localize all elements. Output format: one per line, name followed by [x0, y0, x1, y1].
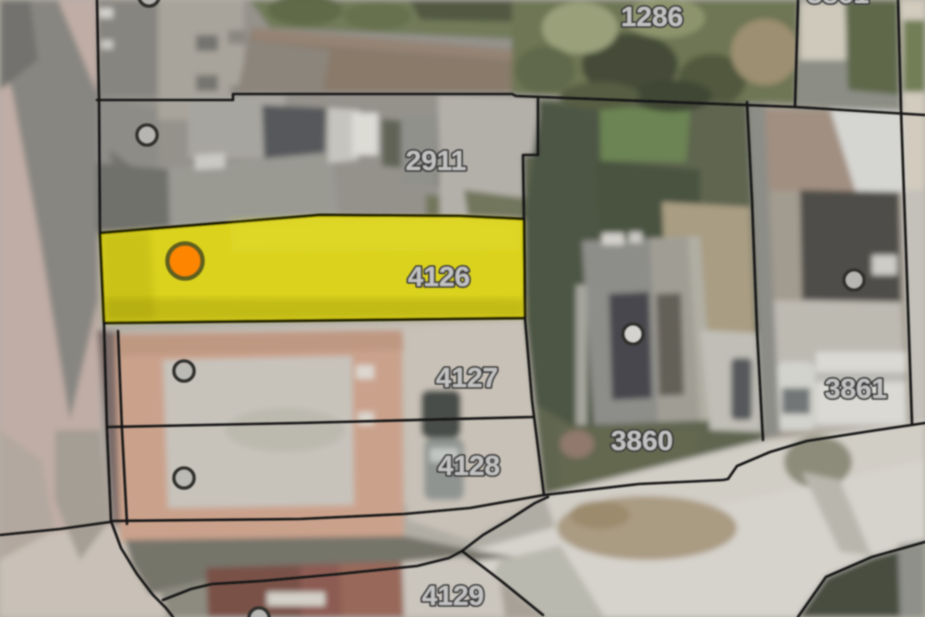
svg-text:4128: 4128	[438, 450, 500, 481]
svg-text:4129: 4129	[422, 580, 484, 611]
svg-text:3860: 3860	[611, 425, 673, 456]
svg-text:3861: 3861	[807, 0, 869, 9]
svg-text:3861: 3861	[825, 373, 887, 404]
svg-text:4127: 4127	[436, 362, 498, 393]
svg-text:1286: 1286	[621, 1, 683, 32]
svg-text:2911: 2911	[406, 145, 467, 176]
svg-text:4126: 4126	[408, 261, 470, 292]
